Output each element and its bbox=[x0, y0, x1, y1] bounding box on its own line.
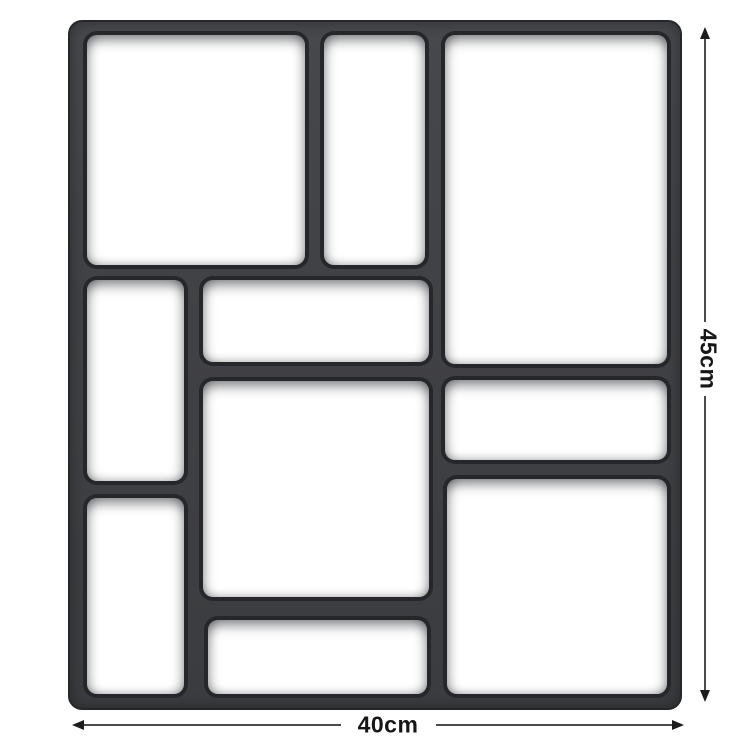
arrow-down-icon bbox=[700, 690, 710, 702]
mold-cavity-top-middle bbox=[324, 35, 425, 265]
mold-cavity-bottom-right bbox=[447, 479, 667, 694]
mold-cavity-right-short bbox=[445, 380, 667, 460]
arrow-up-icon bbox=[700, 27, 710, 39]
paver-mold-frame bbox=[68, 20, 682, 710]
mold-cavity-top-right bbox=[445, 35, 667, 364]
width-dimension-line-left bbox=[84, 724, 341, 726]
product-diagram: 45cm 40cm bbox=[0, 0, 750, 750]
mold-cavity-bottom-left bbox=[87, 498, 184, 694]
mold-cavity-bottom-center bbox=[208, 620, 427, 694]
height-dimension-label: 45cm bbox=[695, 329, 722, 390]
mold-cavity-mid-center bbox=[203, 280, 429, 362]
mold-cavity-top-left bbox=[87, 35, 305, 265]
height-dimension-line-bottom bbox=[704, 396, 706, 690]
width-dimension-label: 40cm bbox=[358, 712, 419, 739]
height-dimension-line-top bbox=[704, 39, 706, 322]
width-dimension-line-right bbox=[436, 724, 672, 726]
mold-cavity-center-big bbox=[203, 381, 429, 597]
arrow-left-icon bbox=[72, 720, 84, 730]
arrow-right-icon bbox=[672, 720, 684, 730]
mold-cavity-mid-left bbox=[87, 280, 184, 481]
